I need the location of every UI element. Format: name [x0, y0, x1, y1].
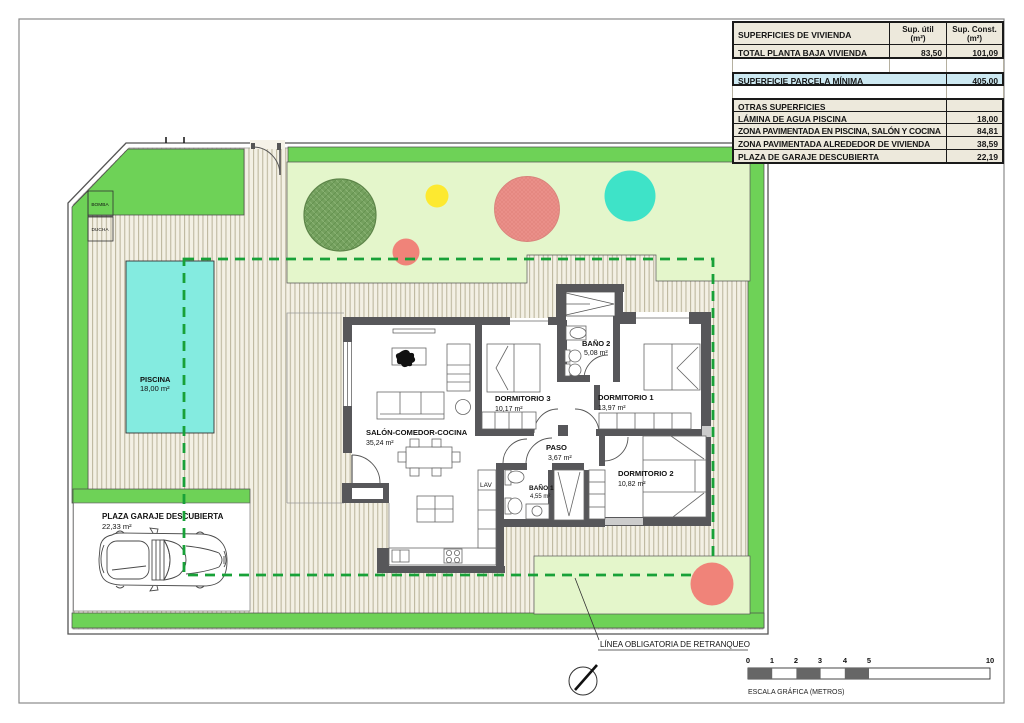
svg-text:BAÑO 2: BAÑO 2 — [582, 339, 610, 348]
svg-text:LÍNEA OBLIGATORIA DE RETRANQUE: LÍNEA OBLIGATORIA DE RETRANQUEO — [600, 640, 750, 649]
svg-text:2: 2 — [794, 656, 798, 665]
svg-text:3,67 m²: 3,67 m² — [548, 455, 572, 462]
svg-text:BAÑO 1: BAÑO 1 — [529, 483, 554, 492]
svg-text:4,55 m²: 4,55 m² — [530, 494, 550, 500]
svg-text:PLAZA GARAJE DESCUBIERTA: PLAZA GARAJE DESCUBIERTA — [102, 512, 224, 521]
svg-text:10,82 m²: 10,82 m² — [618, 481, 646, 488]
svg-text:35,24 m²: 35,24 m² — [366, 440, 394, 447]
svg-text:DUCHA: DUCHA — [91, 227, 109, 233]
svg-text:DORMITORIO 2: DORMITORIO 2 — [618, 469, 674, 478]
svg-text:SALÓN-COMEDOR-COCINA: SALÓN-COMEDOR-COCINA — [366, 428, 468, 437]
svg-text:PISCINA: PISCINA — [140, 375, 171, 384]
svg-text:10: 10 — [986, 656, 994, 665]
svg-text:BOMBA: BOMBA — [91, 202, 109, 208]
svg-text:1: 1 — [770, 656, 774, 665]
svg-text:3: 3 — [818, 656, 822, 665]
svg-text:DORMITORIO 3: DORMITORIO 3 — [495, 394, 551, 403]
svg-text:LAV: LAV — [480, 482, 492, 489]
svg-text:ESCALA GRÁFICA (METROS): ESCALA GRÁFICA (METROS) — [748, 687, 844, 696]
svg-text:5,08 m²: 5,08 m² — [584, 350, 608, 357]
svg-text:DORMITORIO 1: DORMITORIO 1 — [598, 393, 654, 402]
svg-text:0: 0 — [746, 656, 750, 665]
svg-text:18,00 m²: 18,00 m² — [140, 384, 170, 393]
svg-text:PASO: PASO — [546, 443, 567, 452]
svg-text:10,17 m²: 10,17 m² — [495, 406, 523, 413]
svg-text:22,33 m²: 22,33 m² — [102, 522, 132, 531]
svg-text:5: 5 — [867, 656, 871, 665]
svg-text:13,97 m²: 13,97 m² — [598, 405, 626, 412]
